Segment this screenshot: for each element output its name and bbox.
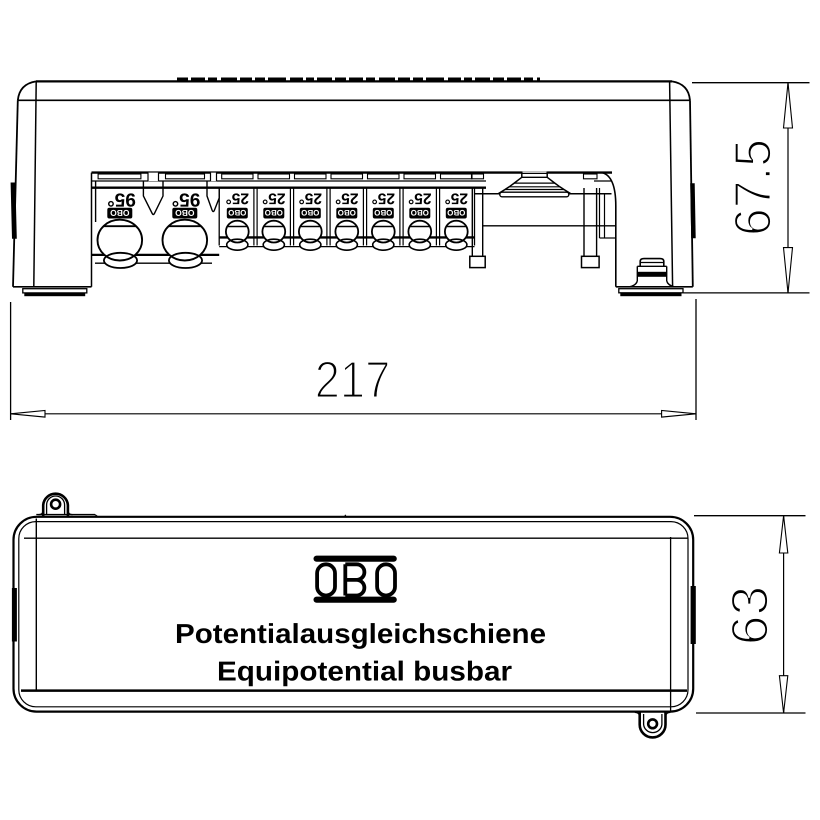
svg-text:25°: 25°	[226, 189, 249, 206]
svg-text:OBO: OBO	[110, 208, 130, 218]
svg-text:25°: 25°	[445, 189, 468, 206]
svg-text:OBO: OBO	[338, 208, 356, 217]
svg-text:OBO: OBO	[228, 208, 246, 217]
svg-text:OBO: OBO	[447, 208, 465, 217]
svg-text:Potentialausgleichschiene: Potentialausgleichschiene	[175, 618, 546, 649]
svg-text:OBO: OBO	[411, 208, 429, 217]
svg-text:25°: 25°	[299, 189, 322, 206]
svg-text:OBO: OBO	[175, 208, 195, 218]
svg-text:OBO: OBO	[301, 208, 319, 217]
svg-text:OBO: OBO	[265, 208, 283, 217]
svg-text:25°: 25°	[262, 189, 285, 206]
svg-text:25°: 25°	[372, 189, 395, 206]
svg-text:25°: 25°	[335, 189, 358, 206]
svg-text:63: 63	[721, 586, 779, 646]
svg-text:95°: 95°	[107, 188, 136, 209]
svg-text:95°: 95°	[172, 188, 201, 209]
svg-text:67.5: 67.5	[725, 139, 783, 236]
svg-text:217: 217	[315, 351, 391, 409]
svg-text:OBO: OBO	[374, 208, 392, 217]
svg-text:25°: 25°	[408, 189, 431, 206]
svg-text:Equipotential busbar: Equipotential busbar	[217, 656, 512, 687]
